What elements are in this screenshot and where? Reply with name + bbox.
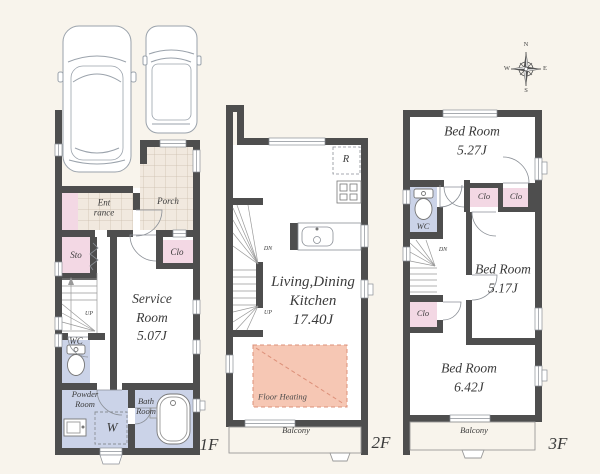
floorplan-drawing xyxy=(0,0,600,474)
floorplan-image: Ent rance Porch Sto Clo Service Room 5.0… xyxy=(0,0,600,474)
balcony-3f xyxy=(410,422,535,458)
kitchen-sink-icon xyxy=(298,223,361,250)
closet-1-3f xyxy=(470,188,498,207)
closet-1f xyxy=(163,240,193,263)
closet-2-3f xyxy=(503,188,528,207)
stove-icon xyxy=(337,181,361,203)
floor-1f-plan xyxy=(55,26,205,464)
balcony-2f xyxy=(229,427,361,461)
sink-icon-powder xyxy=(64,419,86,436)
floor-3f-plan xyxy=(403,110,547,458)
porch-area xyxy=(140,147,193,230)
toilet-icon-1f xyxy=(67,345,85,376)
car-icon-small xyxy=(143,26,201,133)
floor-heating-area xyxy=(253,345,347,407)
entrance-area xyxy=(62,193,133,230)
toilet-icon-3f xyxy=(414,189,433,220)
compass-rose-icon xyxy=(511,52,541,86)
refrigerator-space xyxy=(333,147,360,174)
closet-3-3f xyxy=(410,302,437,327)
entrance-cabinet xyxy=(62,193,78,230)
floor-2f-plan xyxy=(226,105,373,461)
car-icon-large xyxy=(58,26,136,172)
storage-room-1f xyxy=(62,237,90,273)
floor-3f-interior xyxy=(410,117,535,415)
